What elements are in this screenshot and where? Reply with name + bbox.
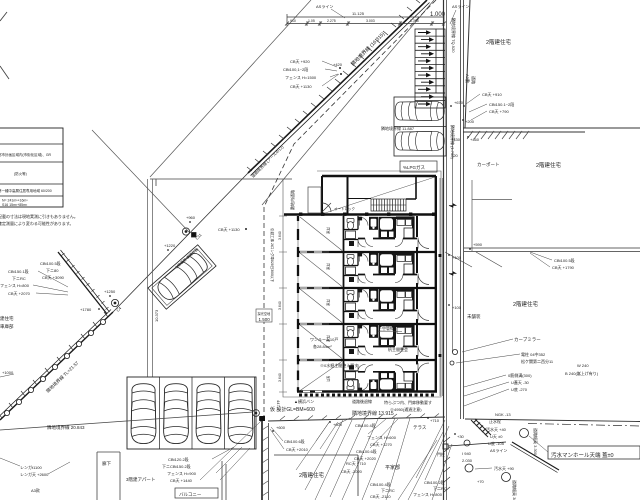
svg-text:道路幅員 3.300: 道路幅員 3.300 — [533, 428, 539, 456]
svg-text:CB天 +2010: CB天 +2010 — [286, 447, 309, 452]
svg-text:CB天 -2020: CB天 -2020 — [341, 469, 363, 474]
svg-text:▲横浜バン: ▲横浜バン — [294, 398, 314, 404]
svg-text:2階建住宅: 2階建住宅 — [536, 161, 562, 169]
svg-text:止水栓: 止水栓 — [489, 418, 501, 424]
svg-text:A3敷: A3敷 — [465, 74, 471, 83]
svg-text:NGK -13: NGK -13 — [495, 412, 511, 417]
svg-text:U底 -270: U底 -270 — [511, 386, 528, 392]
svg-text:汚水天 +40: 汚水天 +40 — [486, 426, 507, 432]
svg-text:447.5: 447.5 — [276, 400, 281, 411]
svg-text:汚水天 +90: 汚水天 +90 — [494, 465, 515, 471]
svg-text:+590: +590 — [473, 242, 483, 247]
svg-text:隣地境界線 11.887: 隣地境界線 11.887 — [381, 125, 415, 131]
svg-text:CBt120.2段: CBt120.2段 — [168, 456, 189, 462]
svg-text:特らぶつ内、門扉移動要す: 特らぶつ内、門扉移動要す — [384, 399, 432, 405]
svg-text:CBt100.6段: CBt100.6段 — [356, 448, 377, 454]
svg-text:N= 241m²+16m²: N= 241m²+16m² — [2, 199, 28, 203]
svg-text:カーポート: カーポート — [477, 161, 500, 168]
svg-text:CBt100.2段: CBt100.2段 — [424, 479, 445, 485]
svg-text:CB天 +2070: CB天 +2070 — [8, 291, 31, 296]
svg-text:+460: +460 — [470, 137, 480, 142]
svg-text:U天 ±0: U天 ±0 — [490, 434, 503, 439]
svg-text:※0水掘主間整え要す: ※0水掘主間整え要す — [320, 362, 358, 368]
svg-text:下ニ80: 下ニ80 — [46, 268, 59, 273]
svg-text:S16 15m²+85m²: S16 15m²+85m² — [2, 203, 28, 207]
svg-text:(防火等): (防火等) — [14, 171, 27, 176]
svg-text:2.275: 2.275 — [327, 19, 336, 23]
svg-text:道路後退線: 道路後退線 — [352, 398, 372, 404]
svg-text:CB天 +910: CB天 +910 — [482, 92, 502, 97]
svg-text:ワンルーム10戸: ワンルーム10戸 — [310, 337, 338, 342]
svg-text:CBt100.5段: CBt100.5段 — [40, 260, 61, 266]
svg-text:+100: +100 — [452, 255, 462, 260]
svg-text:汚水マンホール天端 蓋±0: 汚水マンホール天端 蓋±0 — [551, 451, 614, 459]
svg-text:U蓋天 -30: U蓋天 -30 — [511, 379, 530, 385]
svg-text:レンガt1100: レンガt1100 — [20, 464, 42, 470]
svg-text:バルコニー: バルコニー — [179, 492, 202, 497]
svg-text:ASライン: ASライン — [490, 447, 507, 453]
svg-text:引越工事 2tロング車828日300以下: 引越工事 2tロング車828日300以下 — [270, 228, 275, 283]
svg-text:未舗装: 未舗装 — [467, 313, 481, 320]
svg-text:CB天 +1130: CB天 +1130 — [218, 227, 240, 232]
svg-text:CB天 +1790: CB天 +1790 — [552, 265, 575, 270]
svg-text:隣地境界線 13.915: 隣地境界線 13.915 — [352, 410, 394, 417]
svg-text:オートロック: オートロック — [334, 206, 355, 211]
svg-text:+600: +600 — [333, 422, 343, 427]
svg-text:+70: +70 — [477, 479, 485, 484]
svg-text:1.500: 1.500 — [259, 317, 271, 322]
svg-text:1.365: 1.365 — [410, 19, 419, 23]
svg-text:フェンス H=900: フェンス H=900 — [167, 471, 197, 476]
svg-text:+960: +960 — [186, 215, 196, 220]
svg-text:CB天 +790: CB天 +790 — [489, 109, 509, 114]
svg-text:ASライン: ASライン — [316, 3, 333, 9]
svg-text:W 240: W 240 — [577, 363, 589, 368]
svg-text:CB天 +1130: CB天 +1130 — [290, 84, 312, 89]
svg-text:CB天 +920: CB天 +920 — [290, 59, 310, 64]
svg-text:ASライン: ASライン — [452, 3, 469, 9]
svg-text:+1220: +1220 — [164, 243, 176, 248]
svg-text:平家部: 平家部 — [385, 464, 400, 471]
svg-text:1.000: 1.000 — [430, 12, 446, 18]
svg-text:+420: +420 — [333, 62, 343, 67]
svg-text:下ニRC: 下ニRC — [12, 276, 26, 281]
svg-text:各28.84m²: 各28.84m² — [313, 343, 332, 349]
svg-text:CBt150.1段: CBt150.1段 — [8, 268, 29, 274]
svg-text:CBt150.1~2段: CBt150.1~2段 — [489, 101, 514, 107]
svg-text:レンガ天 +2600: レンガ天 +2600 — [20, 471, 49, 477]
svg-text:車庫部: 車庫部 — [0, 323, 14, 330]
svg-text:フェンス H=800: フェンス H=800 — [413, 492, 443, 497]
svg-text:%LPGガス: %LPGガス — [403, 164, 426, 171]
svg-text:フェンス H=1500: フェンス H=1500 — [285, 75, 317, 80]
svg-text:2.030: 2.030 — [462, 458, 473, 463]
svg-text:上空管線: 上空管線 — [378, 325, 394, 331]
svg-text:電柱 04中352: 電柱 04中352 — [521, 351, 546, 357]
svg-text:建住宅: 建住宅 — [0, 315, 14, 322]
svg-text:門柱: 門柱 — [437, 451, 445, 457]
svg-text:下ニRC: 下ニRC — [381, 488, 395, 493]
svg-text:2階建住宅: 2階建住宅 — [486, 38, 512, 46]
svg-text:隣地境界線 20.843: 隣地境界線 20.843 — [47, 424, 85, 431]
svg-text:+600: +600 — [276, 425, 286, 430]
svg-text:3.640: 3.640 — [278, 231, 282, 240]
svg-text:杭主間整会: 杭主間整会 — [388, 346, 408, 352]
svg-text:2階建住宅: 2階建住宅 — [513, 300, 539, 308]
svg-text:CB天 +1270: CB天 +1270 — [370, 442, 393, 447]
svg-text:記載の寸法は現地実測に引きもありません。: 記載の寸法は現地実測に引きもありません。 — [0, 213, 78, 219]
svg-text:通路: 通路 — [471, 76, 477, 84]
svg-text:B 240(嵩上げ有り): B 240(嵩上げ有り) — [565, 370, 599, 376]
svg-text:3.003: 3.003 — [366, 19, 375, 23]
svg-text:0筋側溝(300): 0筋側溝(300) — [508, 372, 532, 378]
svg-text:CBt100.6段: CBt100.6段 — [284, 438, 305, 444]
svg-text:A3款: A3款 — [31, 487, 40, 493]
svg-text:フェンス H=600: フェンス H=600 — [367, 435, 397, 440]
svg-text:下ニCBt150.2段: 下ニCBt150.2段 — [162, 463, 191, 469]
svg-text:※4950(通過注意): ※4950(通過注意) — [390, 406, 422, 412]
svg-text:11.125: 11.125 — [352, 11, 365, 16]
svg-text:10.373: 10.373 — [154, 309, 159, 322]
svg-text:+430: +430 — [451, 137, 461, 142]
svg-text:1.05: 1.05 — [308, 19, 315, 23]
svg-text:+670: +670 — [454, 100, 464, 105]
svg-text:採光空地: 採光空地 — [258, 311, 272, 316]
svg-text:松ケ関第二西分11: 松ケ関第二西分11 — [521, 358, 554, 364]
svg-text:CBt100.4段: CBt100.4段 — [355, 422, 376, 428]
svg-text:カーブミラー: カーブミラー — [514, 336, 541, 343]
svg-text:CBt100.5段: CBt100.5段 — [554, 257, 575, 263]
svg-text:U底 -105: U底 -105 — [488, 440, 505, 446]
svg-text:+1780: +1780 — [80, 307, 92, 312]
svg-text:+100: +100 — [452, 305, 462, 310]
svg-text:CBt100.4段: CBt100.4段 — [370, 481, 391, 487]
svg-text:3.640: 3.640 — [278, 373, 282, 382]
svg-text:CB天 +3090: CB天 +3090 — [42, 275, 65, 280]
svg-text:都市計画区域内(市街化区域)、GR: 都市計画区域内(市街化区域)、GR — [0, 152, 52, 157]
svg-text:+1250: +1250 — [104, 289, 116, 294]
svg-text:敷地内通路: 敷地内通路 — [289, 190, 295, 210]
svg-text:確定測量により変わる可能性があります。: 確定測量により変わる可能性があります。 — [0, 220, 74, 226]
svg-text:フェンス H=800: フェンス H=800 — [0, 283, 30, 288]
svg-text:+710: +710 — [430, 418, 440, 423]
svg-text:3階建アパート: 3階建アパート — [126, 476, 155, 483]
svg-text:3.640: 3.640 — [278, 301, 282, 310]
svg-text:道路幅員 3800: 道路幅員 3800 — [512, 480, 518, 500]
svg-text:910: 910 — [290, 19, 296, 23]
svg-text:廊下: 廊下 — [102, 460, 111, 467]
svg-text:+30: +30 — [457, 434, 465, 439]
svg-text:第一種中高層住居専用地域 60/200: 第一種中高層住居専用地域 60/200 — [0, 188, 52, 193]
svg-text:CB天 +1440: CB天 +1440 — [170, 478, 193, 483]
svg-text:+200: +200 — [465, 119, 475, 124]
svg-text:CBt100,1~2段: CBt100,1~2段 — [283, 66, 308, 72]
svg-text:I 940: I 940 — [462, 451, 472, 456]
svg-text:隣地境界線 TQ.920: 隣地境界線 TQ.920 — [451, 18, 457, 53]
svg-text:下二RC: 下二RC — [433, 486, 447, 491]
svg-text:RC天 +710: RC天 +710 — [346, 461, 367, 466]
svg-text:-20: -20 — [452, 153, 459, 158]
svg-text:CB天 -2110: CB天 -2110 — [370, 494, 391, 499]
